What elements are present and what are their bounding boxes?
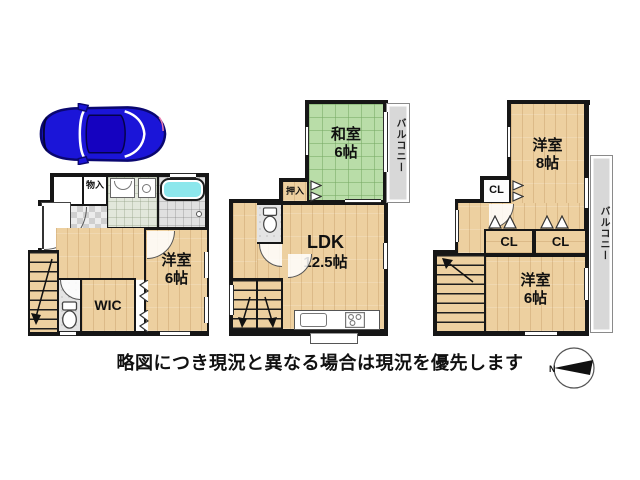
f3-closet-top-bifold-door xyxy=(512,180,524,202)
f2-balcony-slider xyxy=(383,112,388,172)
f2-stove-icon xyxy=(345,312,365,328)
f1-shower-icon xyxy=(196,211,202,217)
f3-bedroom8-name: 洋室 xyxy=(532,137,562,155)
f3-window-bedroom8-left xyxy=(507,127,511,157)
f3-bedroom6-name: 洋室 xyxy=(520,272,550,290)
f3-closet-b-label: CL xyxy=(534,232,587,252)
f1-accordion-door-upper xyxy=(139,280,150,302)
f3-balcony-label: バルコニー xyxy=(596,206,611,286)
compass-icon: N xyxy=(548,345,600,391)
f3-stairs-arrow xyxy=(440,257,476,285)
f2-oshiire-bifold-door xyxy=(310,180,322,202)
f3-bedroom6-label: 洋室 6帖 xyxy=(484,266,587,314)
f3-window-bedroom6-right xyxy=(584,268,589,300)
f3-window-bottom xyxy=(525,331,557,336)
f2-ldk-label: LDK 12.5帖 xyxy=(265,228,386,276)
f1-window-right-upper xyxy=(204,252,209,278)
f3-balcony-slider xyxy=(584,178,589,208)
f2-stairs-arrow-right xyxy=(261,295,279,329)
f1-window-right-lower xyxy=(204,297,209,323)
disclaimer-note: 略図につき現況と異なる場合は現況を優先します xyxy=(60,349,580,375)
f2-stairs-divider xyxy=(256,278,258,331)
f2-toilet-icon xyxy=(262,207,278,234)
f3-closet-a-label: CL xyxy=(484,232,534,252)
f2-balcony-label: バルコニー xyxy=(392,118,407,193)
f2-stairs-arrow-left xyxy=(236,295,254,329)
f2-window-ldk-right xyxy=(383,243,388,269)
f1-stairs-up-arrow xyxy=(30,255,56,329)
f2-washitsu-label: 和室 6帖 xyxy=(307,122,385,166)
f1-accordion-door-lower xyxy=(139,310,150,332)
f3-bedroom8-label: 洋室 8帖 xyxy=(509,132,586,178)
f1-bathtub-icon xyxy=(160,178,205,201)
f1-window-toilet xyxy=(60,331,76,336)
floor-plan-canvas: 物入 WIC 洋室 6帖 xyxy=(0,0,640,480)
car-icon xyxy=(33,103,171,165)
f3-bedroom8-size: 8帖 xyxy=(536,155,559,173)
f3-window-hall-left xyxy=(455,210,459,242)
f3-bedroom6-size: 6帖 xyxy=(524,290,547,308)
f1-washing-machine-drum xyxy=(142,184,151,193)
f2-washitsu-size: 6帖 xyxy=(334,144,357,162)
f1-hall xyxy=(56,228,148,280)
f2-kitchen-bay-window xyxy=(310,333,358,344)
f1-bedroom6-size: 6帖 xyxy=(165,270,188,288)
f2-ldk-name: LDK xyxy=(307,232,344,254)
f1-bedroom6-name: 洋室 xyxy=(161,252,191,270)
f2-window-washitsu-left xyxy=(305,127,309,155)
f2-kitchen-sink-icon xyxy=(300,313,327,327)
f2-window-stairs-left xyxy=(229,285,234,315)
f2-wall-bottom xyxy=(229,331,388,336)
f2-washitsu-ldk-opening xyxy=(345,199,381,203)
f1-window-bath xyxy=(170,173,196,178)
f1-wic-label: WIC xyxy=(80,290,136,320)
f2-oshiire-label: 押入 xyxy=(281,182,309,200)
compass-north-label: N xyxy=(549,364,556,374)
f3-closet-top-label: CL xyxy=(482,181,511,201)
f1-window-bottom xyxy=(160,331,190,336)
f1-toilet-icon xyxy=(61,301,78,330)
f3-closet-a-bifold-door xyxy=(488,215,518,229)
f1-storage-label: 物入 xyxy=(82,177,108,193)
f3-closet-b-bifold-door xyxy=(540,215,570,229)
f2-washitsu-name: 和室 xyxy=(331,126,361,144)
